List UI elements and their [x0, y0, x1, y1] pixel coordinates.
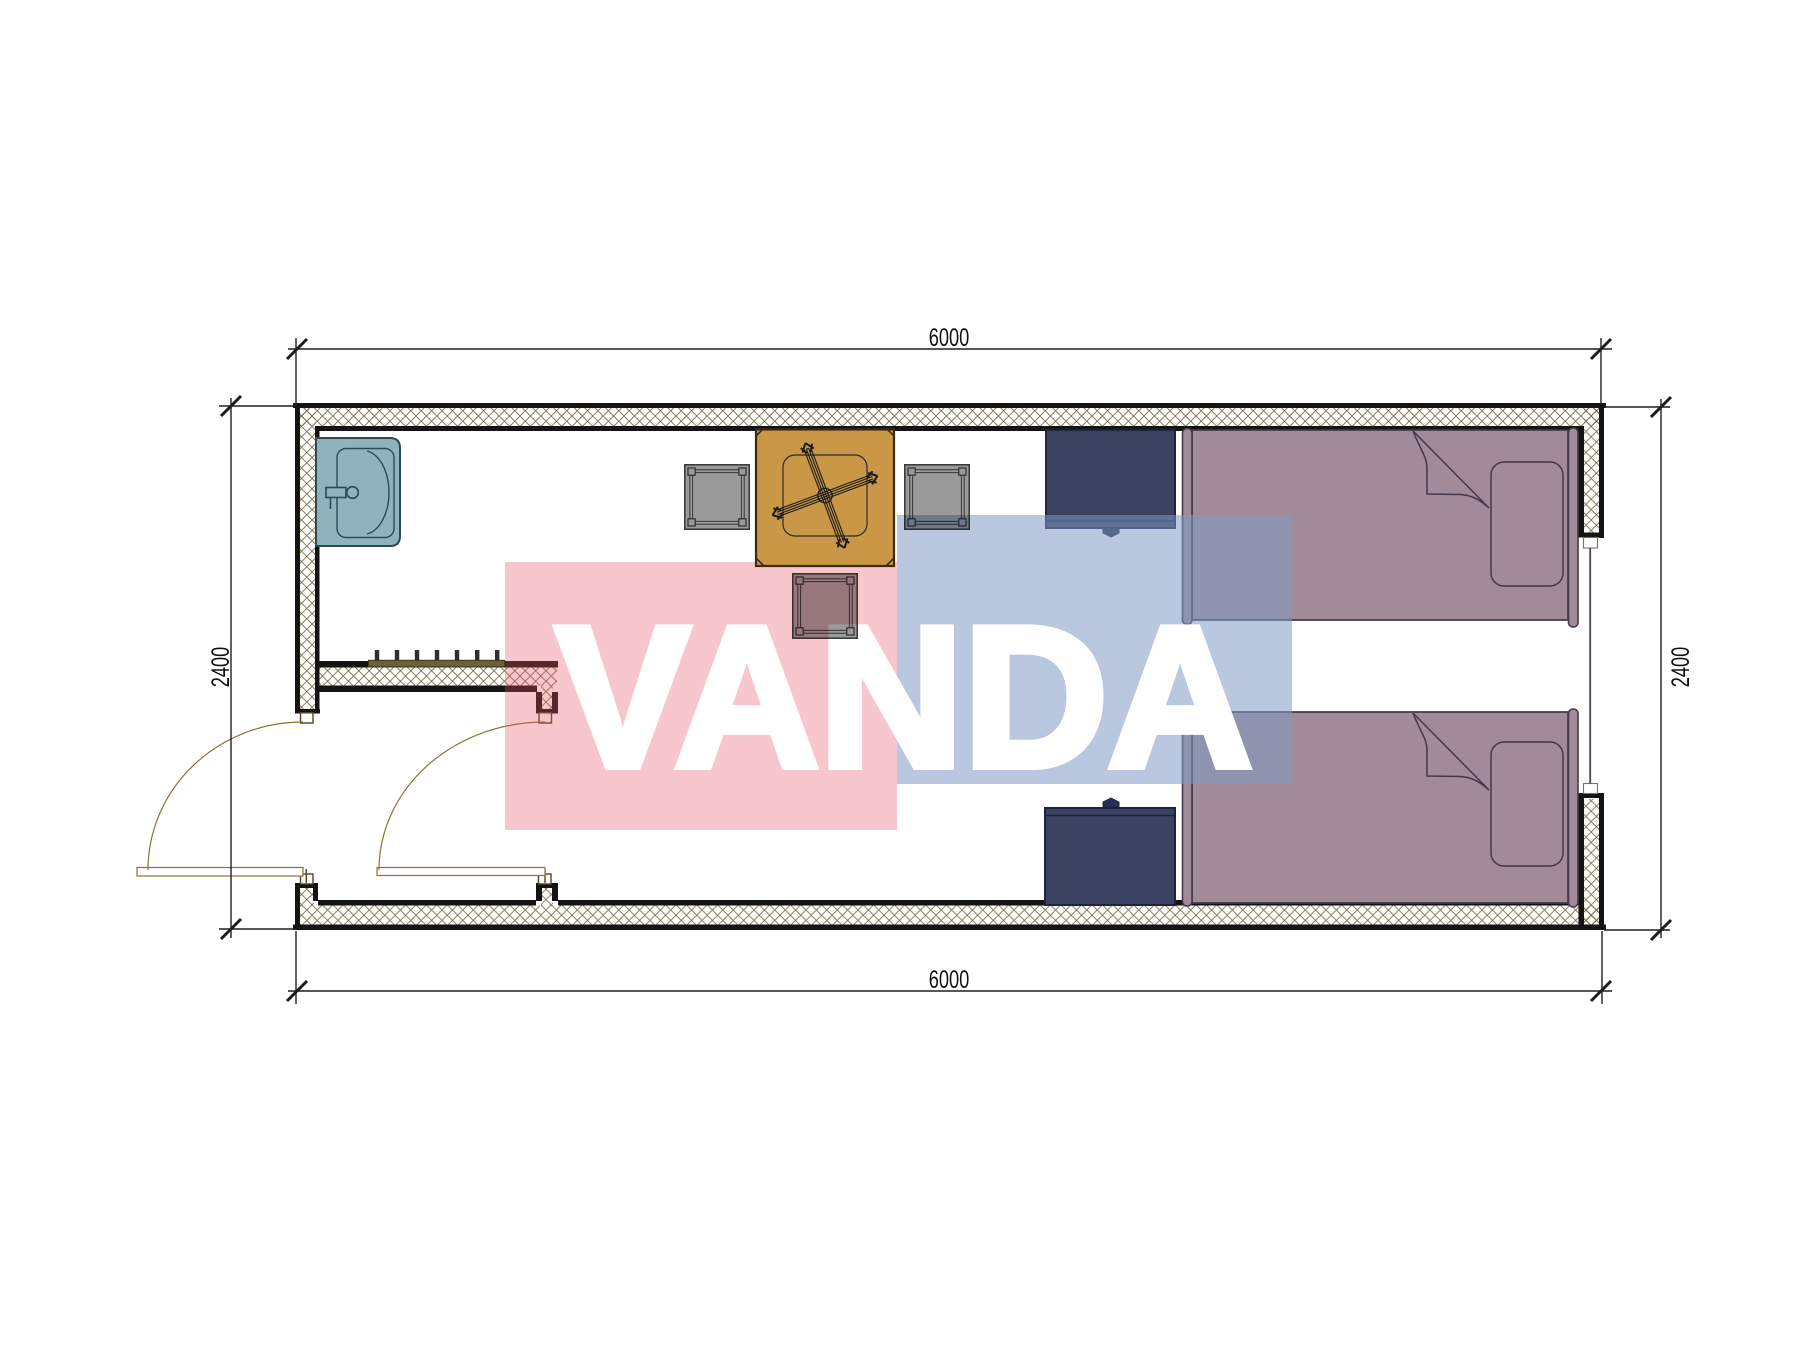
svg-text:2400: 2400: [1666, 647, 1695, 688]
svg-text:VANDA: VANDA: [556, 586, 1252, 809]
svg-text:6000: 6000: [929, 965, 970, 994]
svg-text:2400: 2400: [206, 647, 235, 688]
svg-text:6000: 6000: [929, 323, 970, 352]
